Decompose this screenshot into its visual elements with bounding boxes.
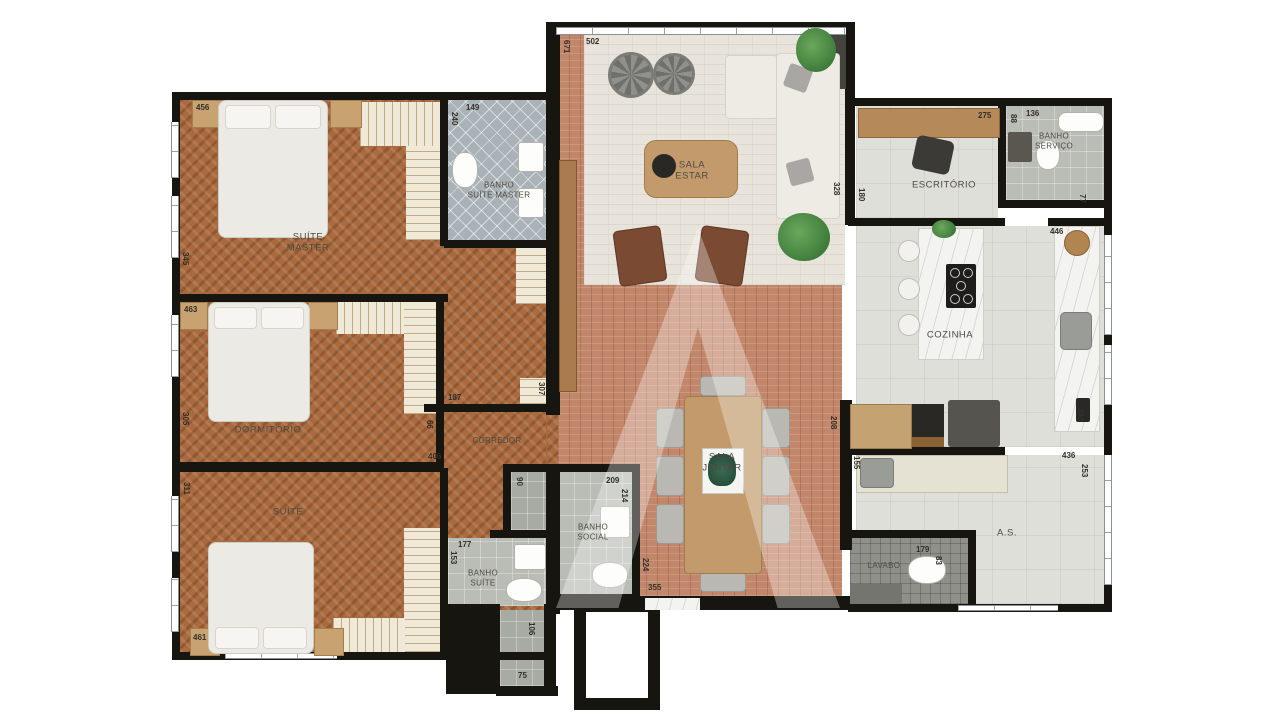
window-suite-1 xyxy=(171,496,179,552)
room-label-as: A.S. xyxy=(997,527,1017,538)
laundry-sink xyxy=(860,458,894,488)
wall-lavabo-right xyxy=(968,530,976,612)
burner xyxy=(950,268,960,278)
room-label-lavabo: LAVABO xyxy=(868,561,901,571)
dim-149: 149 xyxy=(466,104,479,112)
wall-masterbath-bottom xyxy=(444,240,558,248)
wall-arm-right xyxy=(503,472,511,538)
dim-83: 83 xyxy=(934,556,942,565)
dining-chair xyxy=(700,572,746,592)
bar-stool xyxy=(898,278,920,300)
dorm-closet-top xyxy=(336,302,406,334)
kitchen-cabinet-wood xyxy=(850,404,912,449)
core-block-right xyxy=(544,604,556,696)
wall-office-bottom-a xyxy=(848,218,1005,226)
room-label-sala-estar: SALA ESTAR xyxy=(675,160,708,183)
room-label-dormitorio: DORMITÓRIO xyxy=(235,424,302,435)
window-dormitorio xyxy=(171,315,179,377)
wall-servicebath-bottom xyxy=(998,200,1112,208)
master-closet-top xyxy=(360,102,446,146)
dim-153: 153 xyxy=(449,551,457,564)
burner xyxy=(963,294,973,304)
office-door-gap xyxy=(1005,218,1048,226)
window-kitchen-right-2 xyxy=(1104,345,1112,405)
dim-328: 328 xyxy=(832,182,840,195)
dim-187: 187 xyxy=(448,394,461,402)
bed-suite-master xyxy=(218,100,328,238)
wall-suitebath-top xyxy=(490,530,550,538)
wall-dorm-bottom xyxy=(172,462,442,472)
core-block-left xyxy=(446,604,500,694)
dim-461: 461 xyxy=(193,634,206,642)
room-label-banho-suite: BANHO SUÍTE xyxy=(468,568,498,587)
floor-plan: SUÍTE MASTER BANHO SUÍTE MASTER DORMITÓR… xyxy=(0,0,1280,720)
room-label-banho-servico: BANHO SERVIÇO xyxy=(1035,131,1073,150)
bed-suite xyxy=(208,542,314,654)
hall-closet-upper xyxy=(516,242,548,304)
dim-436: 436 xyxy=(1062,452,1075,460)
pillow xyxy=(225,105,271,129)
console-sideboard xyxy=(559,160,577,392)
pillow xyxy=(263,627,307,649)
wall-sm-dorm xyxy=(172,294,448,302)
kitchen-niche xyxy=(912,404,944,447)
room-label-cozinha: COZINHA xyxy=(927,329,973,340)
dim-355: 355 xyxy=(648,584,661,592)
toilet-suite-bath xyxy=(506,578,542,602)
burner xyxy=(963,268,973,278)
round-armchair xyxy=(608,52,654,98)
room-label-banho-social: BANHO SOCIAL xyxy=(577,522,608,541)
dim-463: 463 xyxy=(184,306,197,314)
dim-179: 179 xyxy=(916,546,929,554)
window-kitchen-right xyxy=(1104,235,1112,335)
wall-top-left-wing xyxy=(172,92,556,100)
round-armchair xyxy=(653,53,695,95)
core-shower-bottom xyxy=(496,686,558,696)
window-suite-2 xyxy=(171,578,179,632)
bar-stool xyxy=(898,314,920,336)
cooktop xyxy=(946,264,976,308)
pillow xyxy=(215,627,259,649)
wall-corridor-top xyxy=(424,404,546,412)
window-suite-master-1 xyxy=(171,122,179,178)
sink-suite-bath xyxy=(514,544,546,570)
room-label-banho-suite-master: BANHO SUÍTE MASTER xyxy=(468,180,531,199)
nightstand xyxy=(314,628,344,656)
dim-307: 307 xyxy=(537,382,545,395)
dorm-closet-side xyxy=(404,302,436,414)
plant xyxy=(778,213,830,261)
bed-dormitorio xyxy=(208,302,310,422)
elevator-shaft-void xyxy=(586,612,648,698)
dim-106: 106 xyxy=(527,622,535,635)
tray-decor xyxy=(652,154,676,178)
room-label-corredor: CORREDOR xyxy=(472,436,521,446)
wall-bath-divider xyxy=(550,538,558,596)
wall-dorm-right xyxy=(436,302,444,470)
pillow xyxy=(261,307,304,329)
plant xyxy=(796,28,836,72)
dim-208: 208 xyxy=(829,416,837,429)
dim-224: 224 xyxy=(641,558,649,571)
dim-155: 155 xyxy=(852,456,860,469)
kitchen-sink xyxy=(1060,312,1092,350)
wall-lavabo-top xyxy=(842,530,976,538)
wall-office-bottom-b xyxy=(1048,218,1112,226)
window-laundry-right xyxy=(1104,455,1112,585)
dim-305: 305 xyxy=(181,412,189,425)
nightstand xyxy=(330,100,362,128)
room-label-sala-jantar: SALA JANTAR xyxy=(702,452,741,475)
dim-345: 345 xyxy=(181,252,189,265)
dining-chair xyxy=(656,504,684,544)
wall-top-right-wing xyxy=(848,98,1112,106)
sink-master-bath xyxy=(518,142,544,172)
sofa-chaise xyxy=(725,55,778,119)
room-label-suite-master: SUÍTE MASTER xyxy=(287,232,330,255)
dim-311: 311 xyxy=(182,482,190,495)
room-label-escritorio: ESCRITÓRIO xyxy=(912,179,976,190)
dim-66: 66 xyxy=(425,420,433,429)
burner xyxy=(956,281,966,291)
dim-275: 275 xyxy=(978,112,991,120)
dim-177: 177 xyxy=(458,541,471,549)
dim-75: 75 xyxy=(518,672,527,680)
dim-90: 90 xyxy=(515,477,523,486)
burner xyxy=(950,294,960,304)
dim-253: 253 xyxy=(1080,464,1088,477)
dim-502: 502 xyxy=(586,38,599,46)
service-bath-counter xyxy=(1008,132,1032,162)
pillow xyxy=(214,307,257,329)
refrigerator xyxy=(948,400,1000,447)
dim-88: 88 xyxy=(1009,114,1017,123)
dim-214: 214 xyxy=(620,489,628,502)
dim-671: 671 xyxy=(562,40,570,53)
dining-chair xyxy=(656,456,684,496)
window-laundry-bottom xyxy=(958,605,1058,611)
dim-77: 77 xyxy=(1078,194,1086,203)
wall-center-upper xyxy=(546,22,560,415)
dim-382: 382 xyxy=(1076,408,1084,421)
plant xyxy=(932,220,956,238)
tub-service-bath xyxy=(1058,112,1104,132)
dim-209: 209 xyxy=(606,477,619,485)
suite-closet-side xyxy=(404,528,442,652)
bar-stool xyxy=(898,240,920,262)
dim-180: 180 xyxy=(857,188,865,201)
room-label-suite: SUÍTE xyxy=(273,506,303,517)
lavabo-shower xyxy=(850,584,902,604)
entry-hall-marble xyxy=(645,598,700,610)
dim-240: 240 xyxy=(450,112,458,125)
dim-456: 456 xyxy=(196,104,209,112)
dim-406: 406 xyxy=(428,453,441,461)
pillow xyxy=(275,105,321,129)
dim-136: 136 xyxy=(1026,110,1039,118)
armchair-brown xyxy=(612,225,667,287)
wood-bowl xyxy=(1064,230,1090,256)
wall-masterbath-left xyxy=(440,100,448,246)
wall-living-right xyxy=(845,22,855,225)
dim-446: 446 xyxy=(1050,228,1063,236)
window-suite-master-2 xyxy=(171,196,179,258)
nightstand xyxy=(308,302,338,330)
